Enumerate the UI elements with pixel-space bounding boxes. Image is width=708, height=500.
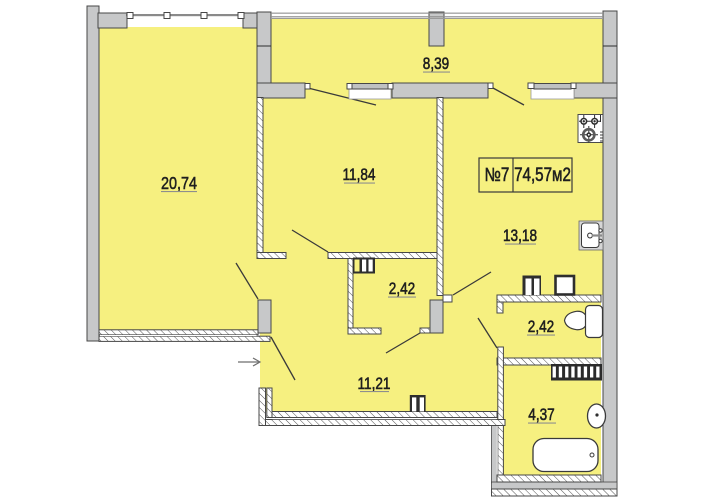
- svg-text:№7: №7: [485, 163, 510, 185]
- svg-text:13,18: 13,18: [503, 227, 537, 246]
- svg-text:20,74: 20,74: [161, 174, 197, 194]
- svg-text:8,39: 8,39: [423, 55, 449, 74]
- svg-text:2,42: 2,42: [528, 318, 554, 337]
- svg-text:74,57м2: 74,57м2: [514, 163, 571, 185]
- svg-text:11,84: 11,84: [343, 166, 376, 185]
- svg-text:2,42: 2,42: [389, 280, 415, 299]
- svg-text:11,21: 11,21: [358, 375, 391, 394]
- svg-text:4,37: 4,37: [528, 406, 554, 425]
